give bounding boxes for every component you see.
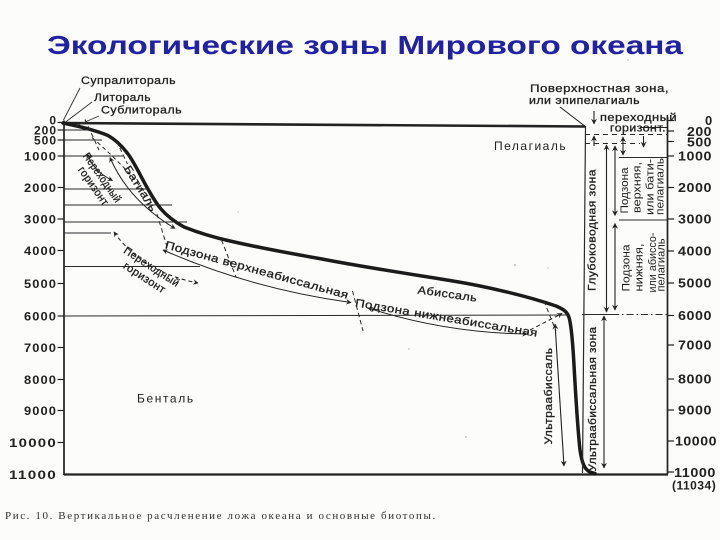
svg-text:Подзона верхнеабиссальная: Подзона верхнеабиссальная (164, 239, 350, 301)
svg-text:5000: 5000 (678, 276, 712, 291)
svg-text:Подзона: Подзона (619, 167, 631, 214)
svg-text:пелагиаль: пелагиаль (655, 158, 667, 215)
svg-text:Литораль: Литораль (94, 92, 151, 104)
svg-text:Глубоководная зона: Глубоководная зона (587, 168, 599, 291)
svg-text:10000: 10000 (9, 436, 57, 450)
svg-text:4000: 4000 (678, 244, 712, 259)
svg-text:Ультраабиссальная зона: Ультраабиссальная зона (587, 326, 599, 472)
svg-text:8000: 8000 (678, 372, 712, 387)
svg-text:Рис. 10. Вертикальное расчлене: Рис. 10. Вертикальное расчленение ложа о… (5, 510, 437, 522)
svg-text:3000: 3000 (678, 212, 712, 227)
svg-text:3000: 3000 (24, 213, 57, 227)
svg-text:6000: 6000 (678, 308, 712, 323)
svg-text:Подзона: Подзона (621, 244, 633, 292)
svg-text:Экологические зоны Мирового ок: Экологические зоны Мирового океана (47, 30, 684, 60)
svg-text:9000: 9000 (678, 403, 712, 418)
svg-text:4000: 4000 (24, 244, 57, 258)
svg-text:Ультраабиссаль: Ультраабиссаль (543, 348, 555, 445)
svg-text:1000: 1000 (678, 149, 712, 164)
svg-text:Подзона нижнеабиссальная: Подзона нижнеабиссальная (354, 297, 538, 339)
svg-text:1000: 1000 (24, 150, 57, 164)
svg-text:7000: 7000 (678, 338, 712, 353)
svg-text:11000: 11000 (9, 468, 57, 482)
svg-text:Поверхностная зона,: Поверхностная зона, (530, 83, 669, 95)
svg-text:верхняя,: верхняя, (632, 162, 644, 213)
svg-text:10000: 10000 (675, 434, 717, 449)
svg-text:или эпипелагиаль: или эпипелагиаль (529, 95, 640, 107)
svg-text:500: 500 (34, 134, 57, 148)
svg-text:нижняя,: нижняя, (634, 244, 646, 292)
svg-text:(11034): (11034) (672, 479, 716, 493)
svg-text:2000: 2000 (24, 181, 57, 195)
svg-text:Абиссаль: Абиссаль (417, 284, 478, 304)
svg-text:8000: 8000 (24, 373, 57, 387)
svg-text:Супралитораль: Супралитораль (81, 75, 176, 87)
svg-text:Пелагиаль: Пелагиаль (494, 139, 567, 153)
svg-text:6000: 6000 (24, 310, 57, 324)
svg-text:7000: 7000 (24, 341, 57, 355)
svg-text:5000: 5000 (24, 277, 57, 291)
svg-text:Бенталь: Бенталь (137, 392, 195, 406)
svg-text:Сублитораль: Сублитораль (101, 105, 182, 117)
svg-text:пелагиаль: пелагиаль (656, 238, 668, 291)
svg-text:2000: 2000 (678, 180, 712, 195)
svg-text:500: 500 (687, 135, 712, 150)
svg-text:горизонт.: горизонт. (610, 123, 666, 135)
svg-text:9000: 9000 (24, 404, 57, 418)
